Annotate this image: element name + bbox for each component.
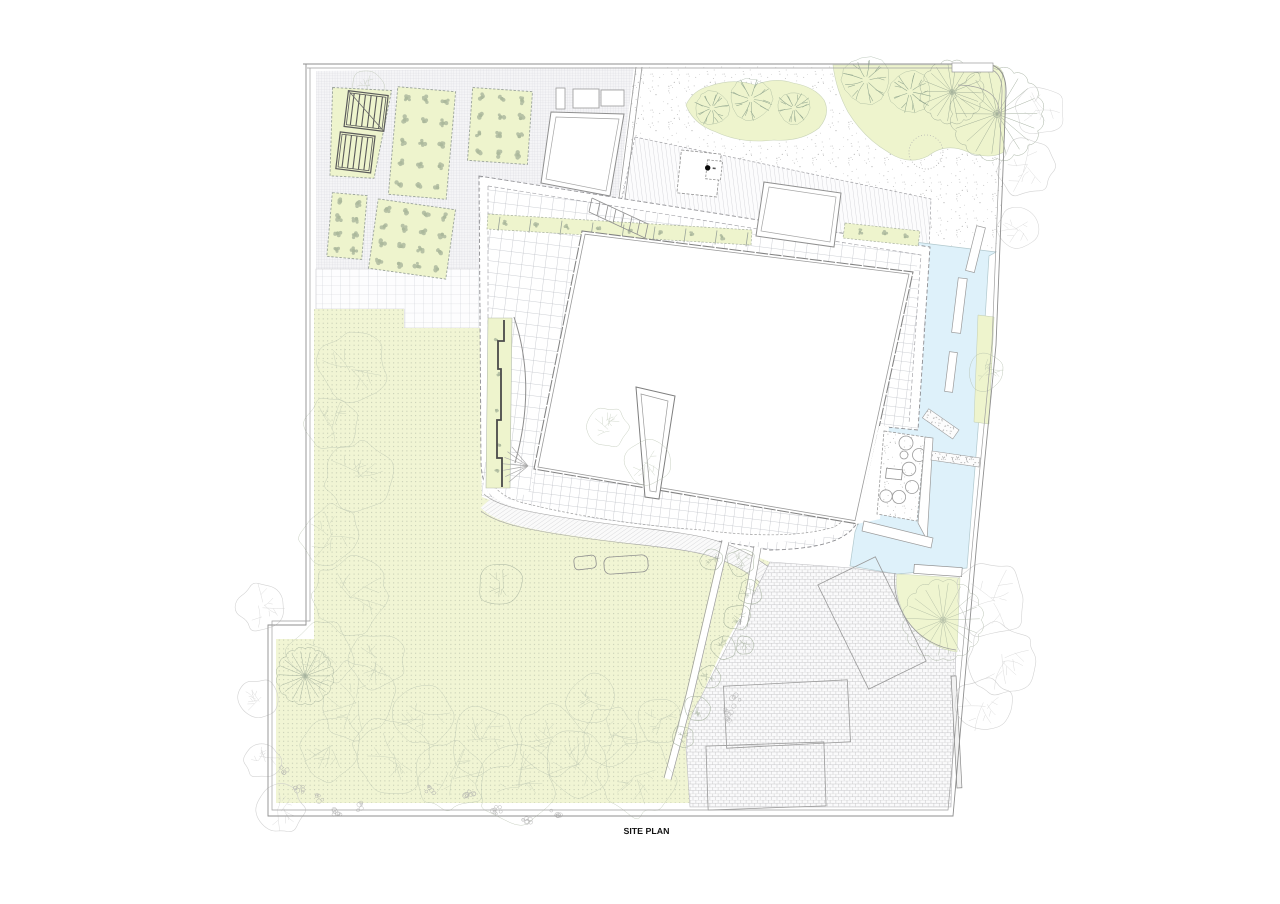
svg-text:SITE PLAN: SITE PLAN [623,826,669,836]
